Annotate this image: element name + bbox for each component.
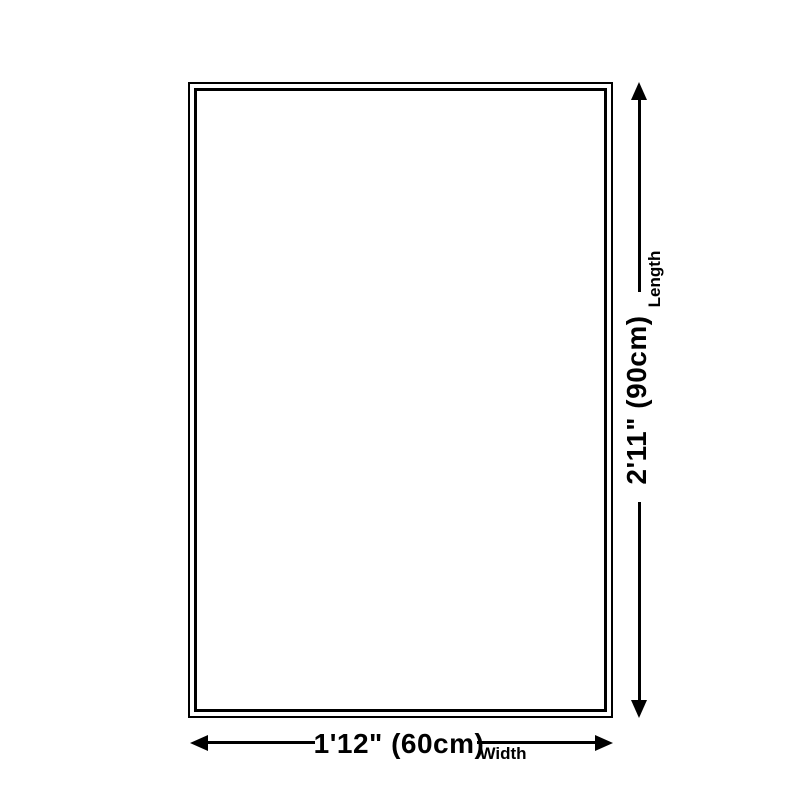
rug-outline-inner: [194, 88, 607, 712]
width-dimension-label: Width: [473, 744, 533, 764]
width-dimension-value: 1'12" (60cm): [318, 728, 480, 759]
rug-outline-outer: [188, 82, 613, 718]
length-dimension-value: 2'11" (90cm): [622, 315, 652, 485]
length-arrow-line-bottom: [638, 502, 641, 700]
arrow-right-icon: [595, 735, 613, 751]
arrow-up-icon: [631, 82, 647, 100]
length-dimension-label: Length: [645, 249, 665, 309]
dimension-diagram: { "diagram": { "background_color": "#fff…: [0, 0, 800, 800]
arrow-down-icon: [631, 700, 647, 718]
width-arrow-line-left: [208, 741, 315, 744]
arrow-left-icon: [190, 735, 208, 751]
length-arrow-line-top: [638, 100, 641, 292]
